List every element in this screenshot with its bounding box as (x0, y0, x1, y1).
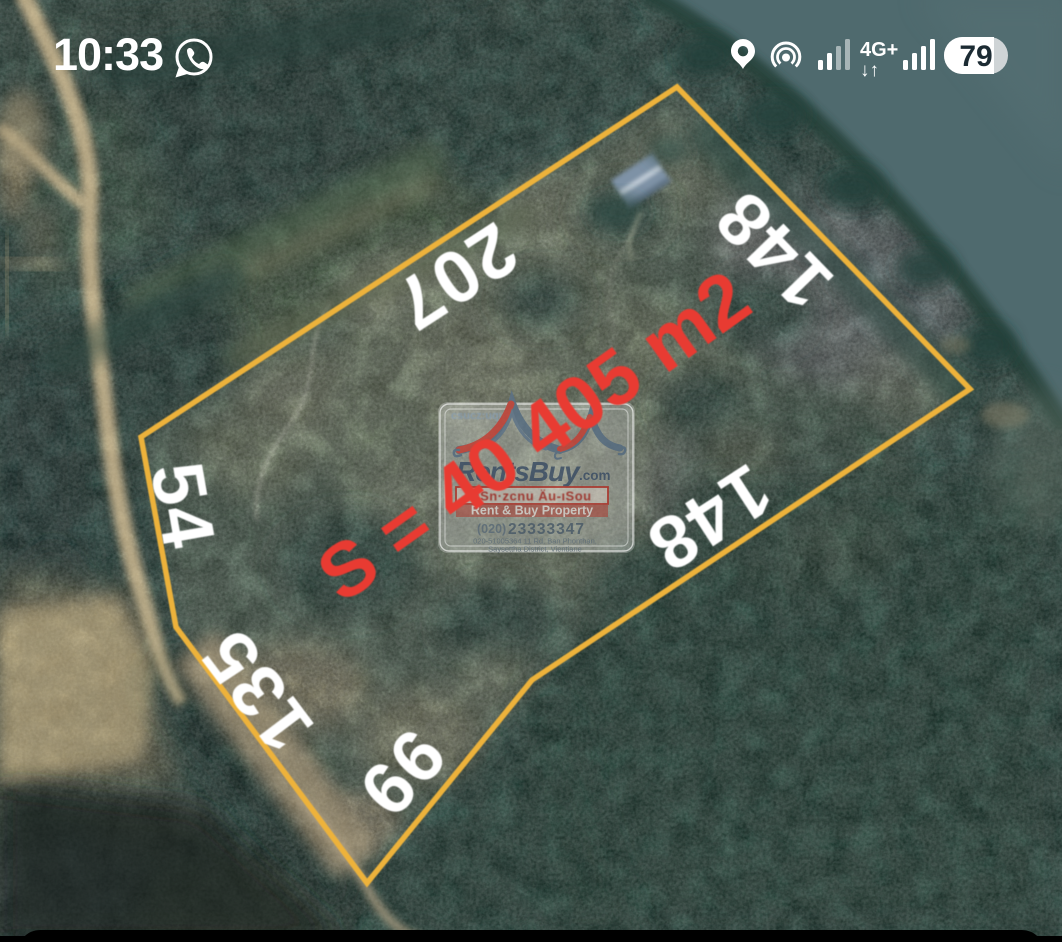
svg-text:.com: .com (579, 468, 611, 483)
svg-text:4G+: 4G+ (860, 39, 898, 61)
svg-text:23333347: 23333347 (508, 521, 585, 538)
svg-text:Saysettha District, Vientiane: Saysettha District, Vientiane (488, 545, 582, 554)
svg-text:10:33: 10:33 (53, 29, 163, 80)
svg-text:79: 79 (959, 40, 992, 73)
svg-text:↓↑: ↓↑ (860, 60, 879, 81)
svg-text:54: 54 (134, 456, 231, 555)
